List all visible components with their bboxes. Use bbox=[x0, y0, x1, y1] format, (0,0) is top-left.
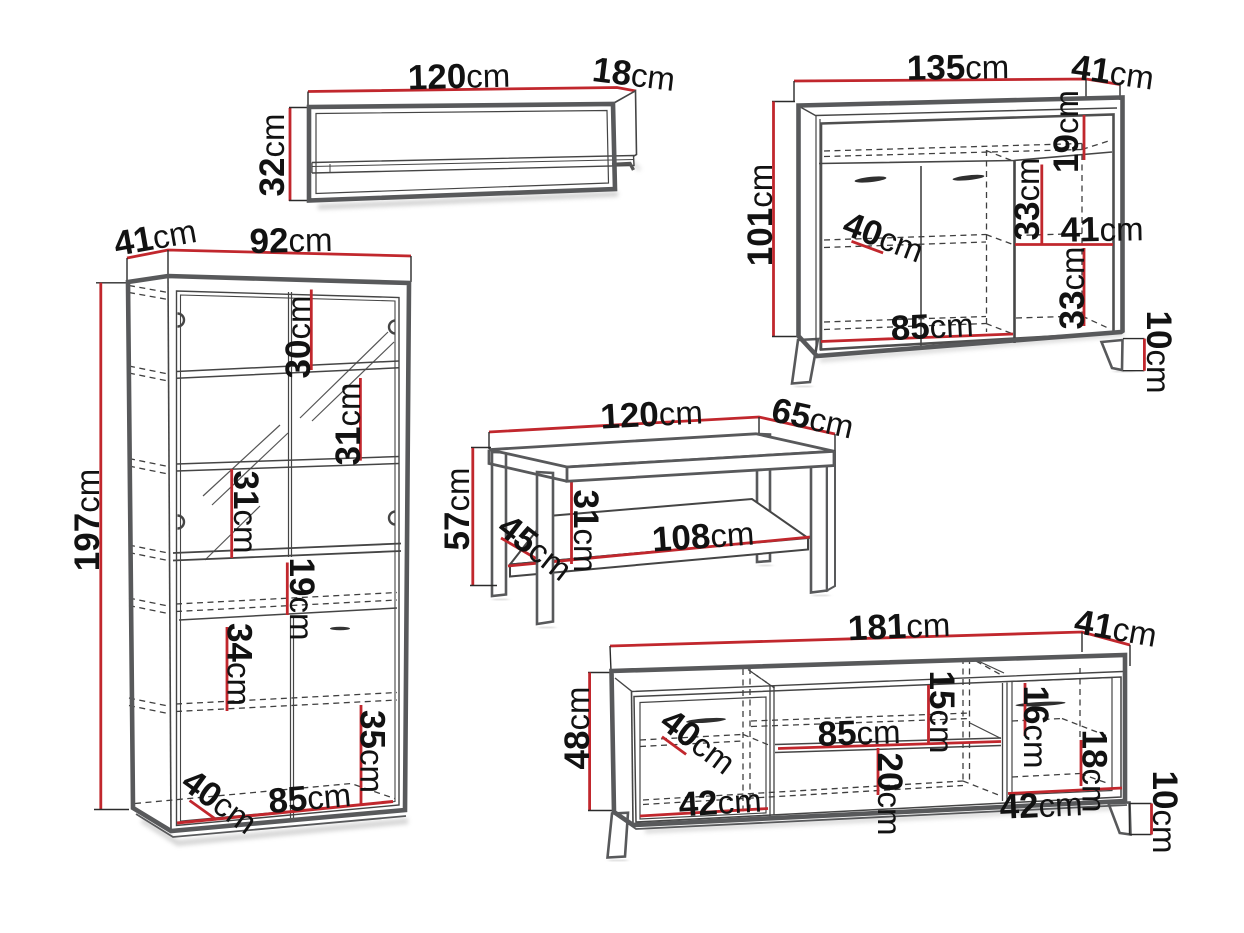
svg-text:10cm: 10cm bbox=[1145, 771, 1184, 854]
svg-text:32cm: 32cm bbox=[253, 114, 292, 197]
svg-text:197cm: 197cm bbox=[68, 469, 107, 571]
svg-text:19cm: 19cm bbox=[1047, 90, 1086, 173]
svg-text:85cm: 85cm bbox=[890, 305, 975, 348]
svg-text:41cm: 41cm bbox=[1060, 209, 1144, 249]
svg-text:120cm: 120cm bbox=[599, 392, 703, 436]
svg-text:92cm: 92cm bbox=[249, 220, 333, 261]
svg-text:135cm: 135cm bbox=[906, 47, 1009, 88]
svg-text:48cm: 48cm bbox=[558, 687, 597, 770]
svg-text:181cm: 181cm bbox=[847, 605, 951, 648]
svg-text:85cm: 85cm bbox=[817, 712, 901, 754]
svg-text:120cm: 120cm bbox=[407, 56, 510, 98]
svg-text:19cm: 19cm bbox=[282, 558, 321, 641]
svg-text:31cm: 31cm bbox=[226, 471, 265, 554]
svg-text:20cm: 20cm bbox=[870, 753, 909, 836]
svg-text:57cm: 57cm bbox=[438, 468, 477, 551]
svg-text:35cm: 35cm bbox=[353, 710, 392, 793]
svg-text:42cm: 42cm bbox=[678, 781, 763, 825]
svg-text:34cm: 34cm bbox=[220, 623, 259, 706]
svg-text:31cm: 31cm bbox=[329, 383, 368, 466]
svg-text:33cm: 33cm bbox=[1053, 247, 1092, 330]
svg-text:30cm: 30cm bbox=[279, 296, 318, 379]
svg-text:16cm: 16cm bbox=[1016, 686, 1055, 769]
svg-text:33cm: 33cm bbox=[1008, 158, 1047, 241]
svg-text:101cm: 101cm bbox=[741, 164, 780, 266]
svg-text:42cm: 42cm bbox=[999, 784, 1084, 827]
svg-text:10cm: 10cm bbox=[1139, 311, 1178, 394]
svg-text:15cm: 15cm bbox=[922, 671, 961, 754]
